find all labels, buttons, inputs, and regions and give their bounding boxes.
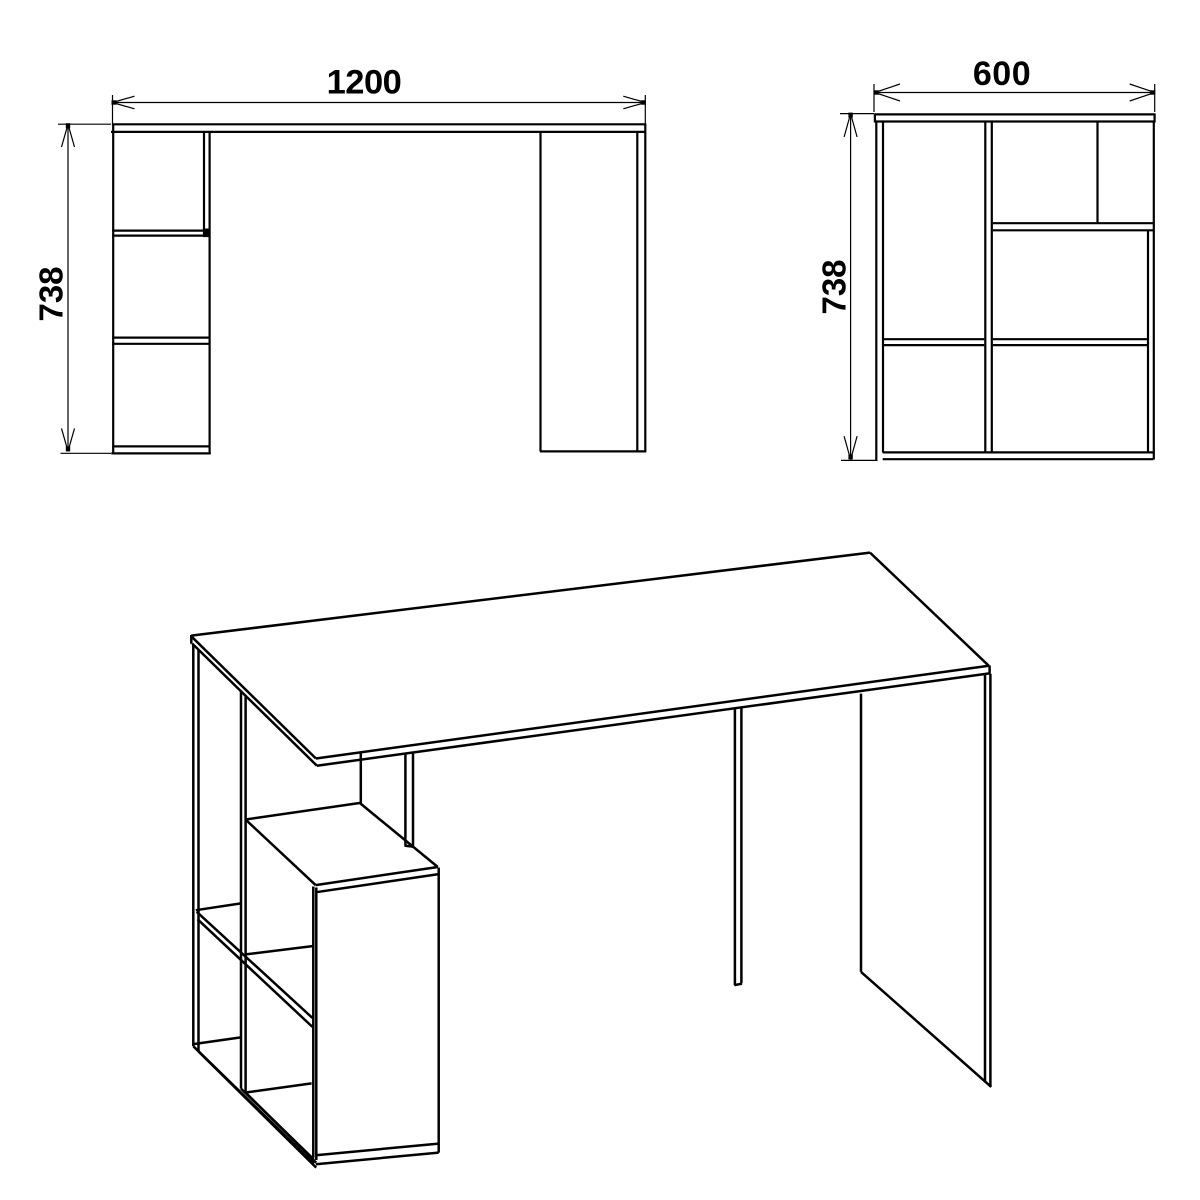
svg-text:738: 738: [816, 259, 853, 314]
svg-text:738: 738: [33, 266, 70, 321]
svg-text:600: 600: [973, 55, 1031, 93]
svg-text:1200: 1200: [327, 64, 402, 102]
